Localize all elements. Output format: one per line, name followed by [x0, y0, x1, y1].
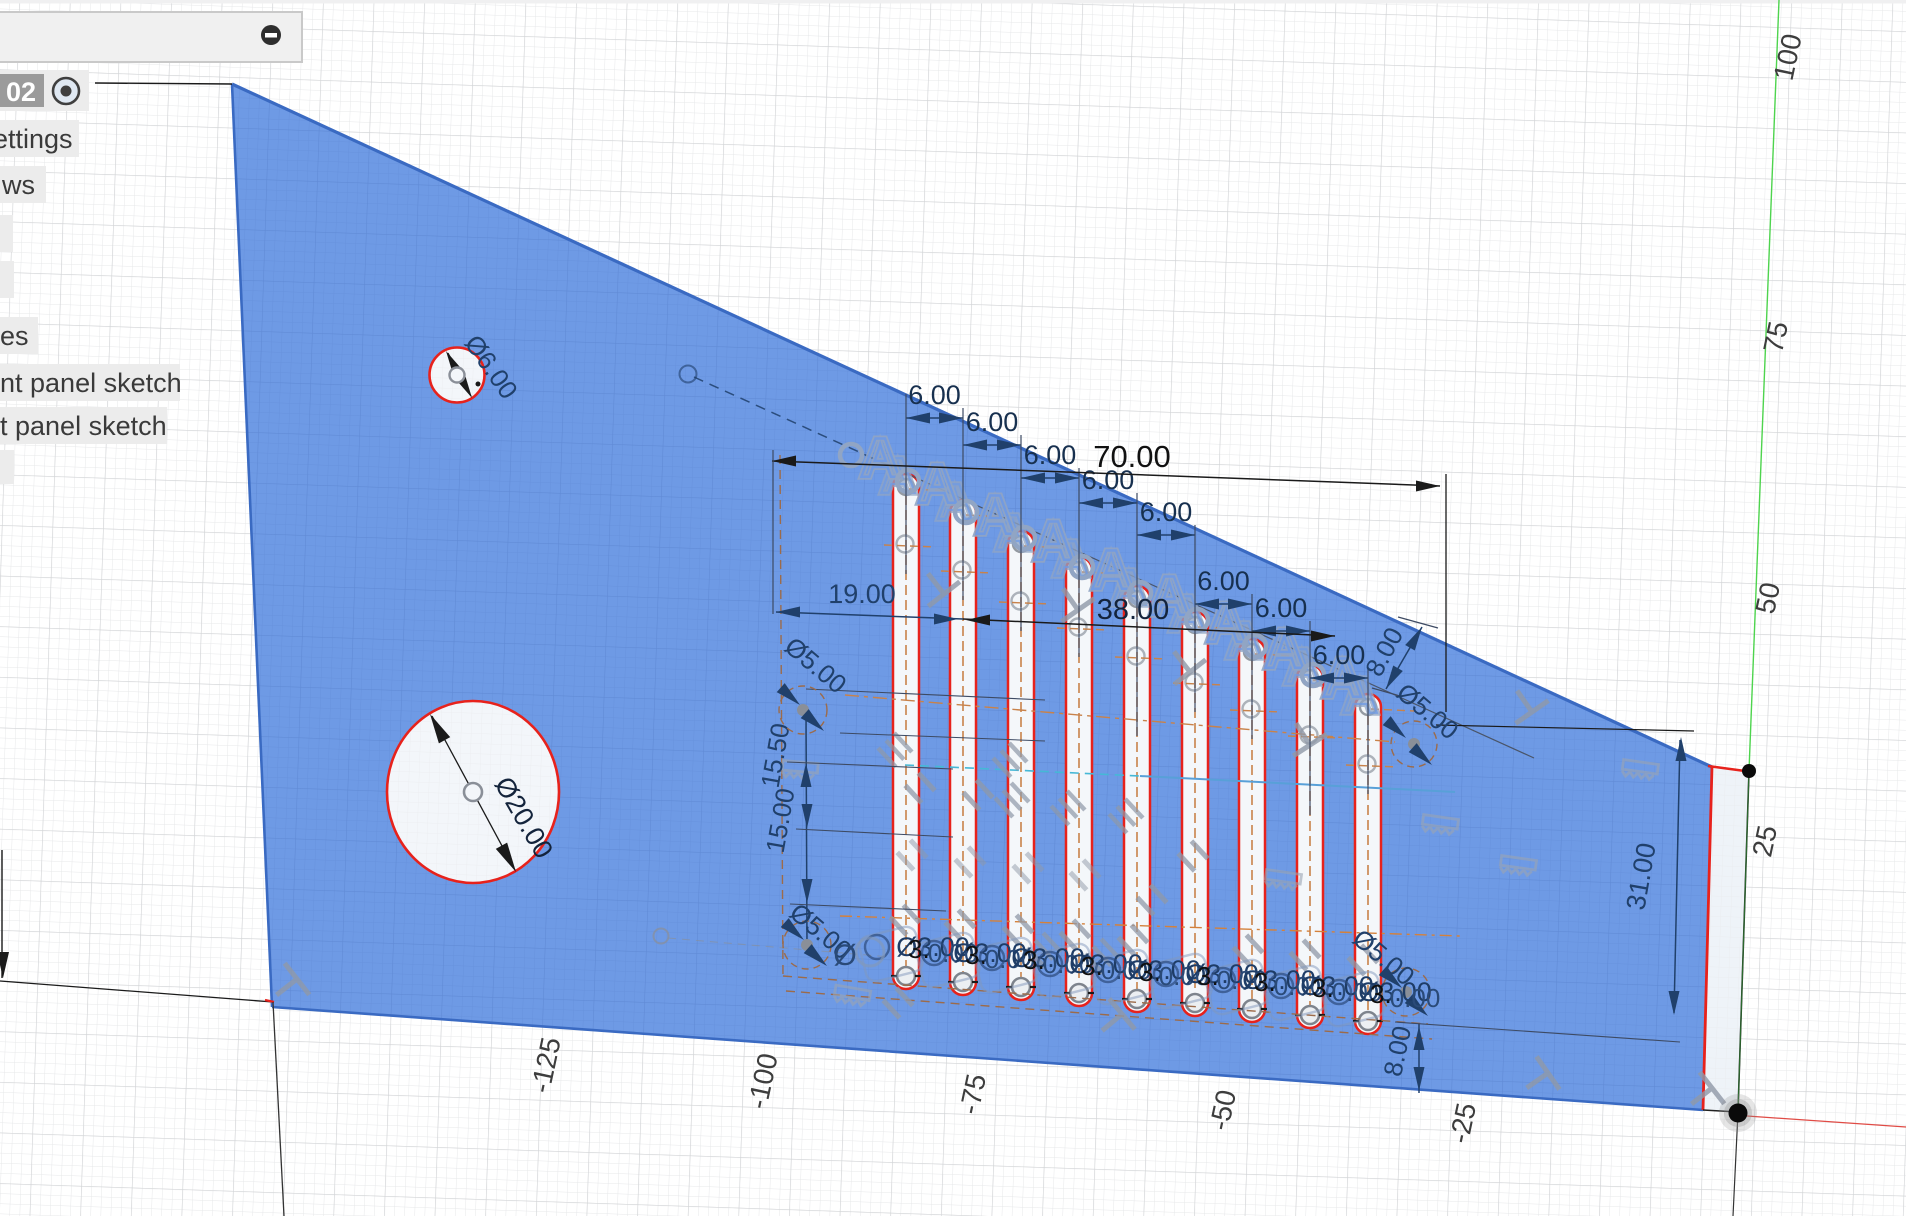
svg-text:3.: 3.	[1370, 979, 1392, 1009]
svg-text:A: A	[860, 426, 900, 489]
svg-text:t panel sketch: t panel sketch	[0, 411, 167, 441]
svg-text:70.00: 70.00	[1093, 439, 1171, 474]
svg-text:6.00: 6.00	[1197, 566, 1250, 596]
svg-text:ws: ws	[1, 170, 35, 200]
svg-text:50: 50	[1749, 580, 1786, 617]
svg-text:6.00: 6.00	[966, 407, 1019, 437]
svg-text:6.00: 6.00	[1024, 440, 1077, 470]
svg-text:02: 02	[6, 77, 36, 107]
svg-text:A: A	[1033, 509, 1073, 572]
svg-text:A: A	[975, 483, 1015, 546]
svg-text:6.00: 6.00	[908, 380, 961, 410]
svg-text:nt panel sketch: nt panel sketch	[0, 368, 182, 398]
svg-text:0.00: 0.00	[1390, 983, 1441, 1013]
svg-text:19.00: 19.00	[828, 579, 896, 609]
svg-text:38.00: 38.00	[1097, 594, 1170, 626]
svg-text:3.: 3.	[1023, 945, 1045, 975]
svg-text:Ø: Ø	[833, 939, 856, 972]
svg-text:75: 75	[1757, 319, 1794, 356]
svg-text:6.00: 6.00	[1255, 593, 1308, 623]
svg-text:25: 25	[1746, 823, 1783, 860]
svg-text:es: es	[0, 321, 29, 351]
svg-text:6.00: 6.00	[1140, 497, 1193, 527]
svg-text:3.: 3.	[1312, 973, 1334, 1003]
svg-text:3.: 3.	[908, 934, 930, 964]
svg-text:A: A	[1264, 617, 1304, 680]
svg-text:6.00: 6.00	[1313, 640, 1366, 670]
svg-text:A: A	[917, 452, 957, 515]
svg-text:3.: 3.	[1197, 961, 1219, 991]
svg-text:3.: 3.	[1254, 967, 1276, 997]
svg-text:A: A	[1091, 538, 1131, 601]
svg-text:3.: 3.	[1081, 951, 1103, 981]
svg-text:ettings: ettings	[0, 124, 73, 154]
